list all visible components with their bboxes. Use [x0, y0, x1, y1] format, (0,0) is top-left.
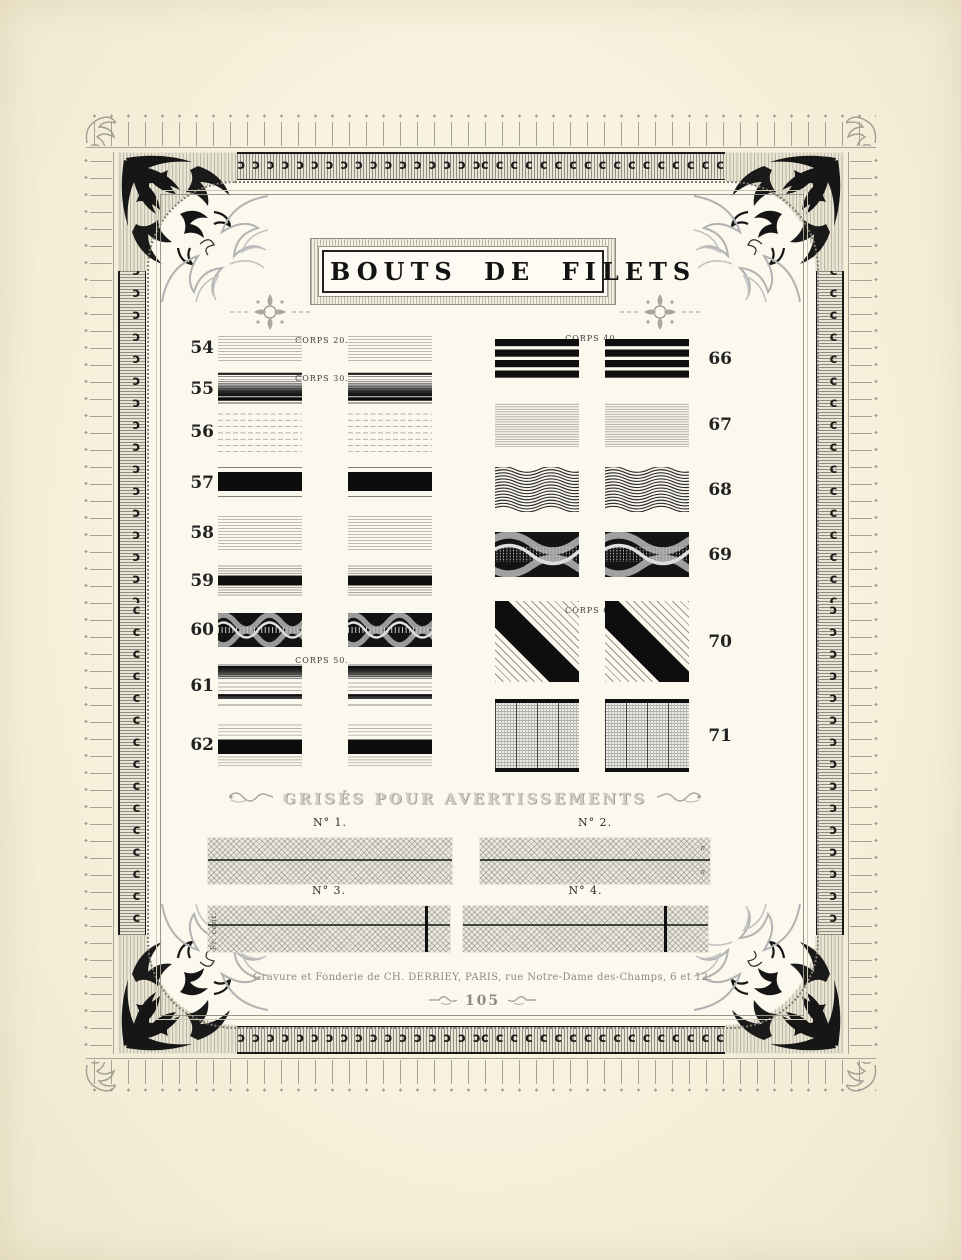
page-number: 105: [465, 993, 500, 1009]
specimen-number: 68: [700, 482, 732, 499]
flourish-left-icon: [229, 789, 273, 808]
border-band-right: ccccccccccccccccccccccccccccɔɔɔɔɔɔɔɔɔɔɔɔ…: [816, 154, 842, 1052]
rule-specimen-swatch: [605, 467, 689, 512]
rosette-ornament-left: [230, 292, 310, 336]
fringe-dots: [86, 1086, 876, 1094]
fringe-dots: [86, 112, 876, 120]
fringe-spikes: [90, 152, 112, 1054]
fringe-dots: [82, 152, 90, 1054]
title-inner-frame: BOUTS DE FILETS: [322, 250, 604, 293]
grises-heading-row: GRISÉS POUR AVERTISSEMENTS: [160, 789, 770, 808]
specimen-row: 70 CORPS 60.: [160, 601, 805, 682]
scroll-motif-column: ccccccccccccccccccccccccccccɔɔɔɔɔɔɔɔɔɔɔɔ…: [817, 154, 842, 1052]
fringe-dots: [872, 152, 880, 1054]
page-number-flourish-left-icon: [429, 991, 459, 1010]
grise-texture-band: Fr. cent.: [208, 906, 450, 952]
specimen-row: 67: [160, 403, 805, 447]
fringe-corner-sprig: [84, 1058, 116, 1094]
border-band-top: ɔɔɔɔɔɔɔɔɔɔɔɔɔɔɔɔɔɔɔɔɔɔɔɔɔɔɔɔɔɔɔɔɔɔɔɔɔɔɔɔ…: [120, 154, 842, 180]
page-number-row: 105: [160, 991, 805, 1010]
grises-heading: GRISÉS POUR AVERTISSEMENTS: [283, 790, 647, 808]
page-number-flourish-right-icon: [506, 991, 536, 1010]
border-band-left: ɔɔɔɔɔɔɔɔɔɔɔɔɔɔɔɔɔɔɔɔɔɔɔɔɔɔɔɔcccccccccccc…: [120, 154, 146, 1052]
margin-mark: n: [700, 868, 705, 876]
rule-specimen-swatch: [605, 338, 689, 380]
horizontal-rule: [463, 924, 708, 926]
grise-number-label: N° 1.: [208, 816, 452, 829]
scroll-motif-column: ɔɔɔɔɔɔɔɔɔɔɔɔɔɔɔɔɔɔɔɔɔɔɔɔɔɔɔɔcccccccccccc…: [120, 154, 145, 1052]
specimen-number: 69: [700, 547, 732, 564]
specimen-plate-page: ɔɔɔɔɔɔɔɔɔɔɔɔɔɔɔɔɔɔɔɔɔɔɔɔɔɔɔɔɔɔɔɔɔɔɔɔɔɔɔɔ…: [0, 0, 961, 1260]
fringe-border-top: [86, 112, 876, 152]
grise-number-label: N° 3.: [208, 884, 450, 897]
fringe-spikes: [86, 122, 876, 146]
specimen-number: 66: [700, 351, 732, 368]
horizontal-rule: [208, 859, 452, 861]
rule-specimen-swatch: [495, 467, 579, 512]
specimen-number: 71: [700, 728, 732, 745]
grise-texture-band: [208, 838, 452, 884]
grise-texture-band: nn: [480, 838, 710, 884]
rule-specimen-swatch: [495, 601, 579, 682]
scroll-motif-row: ɔɔɔɔɔɔɔɔɔɔɔɔɔɔɔɔɔɔɔɔɔɔɔɔɔɔɔɔɔɔɔɔɔɔɔɔɔɔɔɔ…: [120, 1027, 842, 1052]
specimen-row: 68: [160, 467, 805, 512]
rule-specimen-swatch: [495, 403, 579, 447]
fringe-rail: [86, 147, 876, 148]
plate-content: BOUTS DE FILETS 54 CORPS 20. 55 CORPS 30…: [160, 200, 805, 1028]
specimen-number: 67: [700, 417, 732, 434]
specimen-row: 69: [160, 532, 805, 577]
vertical-rule: [425, 906, 428, 952]
margin-mark: n: [700, 844, 705, 852]
grise-number-label: N° 2.: [480, 816, 710, 829]
fringe-rail: [848, 152, 849, 1054]
horizontal-rule: [208, 924, 450, 926]
fringe-rail: [86, 1058, 876, 1059]
specimen-row: 71: [160, 699, 805, 772]
specimen-number: 55: [182, 381, 214, 398]
horizontal-rule: [480, 859, 710, 861]
fringe-border-bottom: [86, 1054, 876, 1094]
scroll-motif-row: ɔɔɔɔɔɔɔɔɔɔɔɔɔɔɔɔɔɔɔɔɔɔɔɔɔɔɔɔɔɔɔɔɔɔɔɔɔɔɔɔ…: [120, 154, 842, 179]
rule-specimen-swatch: [495, 532, 579, 577]
rule-specimen-swatch: [605, 403, 689, 447]
rule-specimen-swatch: [605, 532, 689, 577]
fringe-corner-sprig: [846, 1058, 878, 1094]
fringe-spikes: [86, 1060, 876, 1084]
fringe-spikes: [850, 152, 872, 1054]
title-mid-frame: BOUTS DE FILETS: [318, 246, 608, 297]
title-hatched-band: BOUTS DE FILETS: [311, 239, 615, 304]
fringe-corner-sprig: [84, 114, 116, 150]
foundry-imprint: Gravure et Fonderie de CH. DERRIEY, PARI…: [160, 972, 805, 983]
title-box: BOUTS DE FILETS: [310, 238, 616, 305]
flourish-right-icon: [657, 789, 701, 808]
rule-specimen-swatch: [605, 699, 689, 772]
rosette-ornament-right: [620, 292, 700, 336]
grise-number-label: N° 4.: [463, 884, 708, 897]
fringe-border-left: [82, 152, 118, 1054]
title-row: BOUTS DE FILETS: [160, 238, 805, 312]
grise-texture-band: [463, 906, 708, 952]
rule-specimen-swatch: [495, 699, 579, 772]
franc-centime-side-label: Fr. cent.: [210, 908, 218, 950]
fringe-border-right: [844, 152, 880, 1054]
page-title: BOUTS DE FILETS: [330, 257, 596, 286]
specimen-number: 70: [700, 634, 732, 651]
rule-specimen-swatch: [605, 601, 689, 682]
border-band-bottom: ɔɔɔɔɔɔɔɔɔɔɔɔɔɔɔɔɔɔɔɔɔɔɔɔɔɔɔɔɔɔɔɔɔɔɔɔɔɔɔɔ…: [120, 1026, 842, 1052]
fringe-corner-sprig: [846, 114, 878, 150]
fringe-rail: [113, 152, 114, 1054]
rule-specimen-swatch: [495, 338, 579, 380]
vertical-rule: [664, 906, 667, 952]
specimen-row: 66 CORPS 40.: [160, 338, 805, 380]
